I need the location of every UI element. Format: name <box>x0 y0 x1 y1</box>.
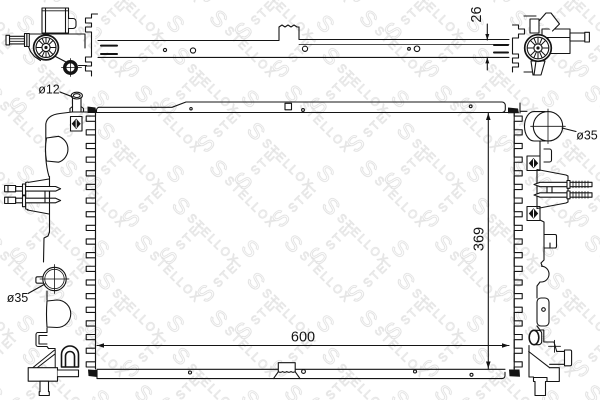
svg-text:ø35: ø35 <box>576 129 598 143</box>
svg-text:ø12: ø12 <box>38 83 60 97</box>
svg-text:600: 600 <box>291 330 315 346</box>
svg-text:ø35: ø35 <box>7 291 29 305</box>
svg-text:369: 369 <box>472 227 488 251</box>
svg-text:26: 26 <box>469 6 485 22</box>
